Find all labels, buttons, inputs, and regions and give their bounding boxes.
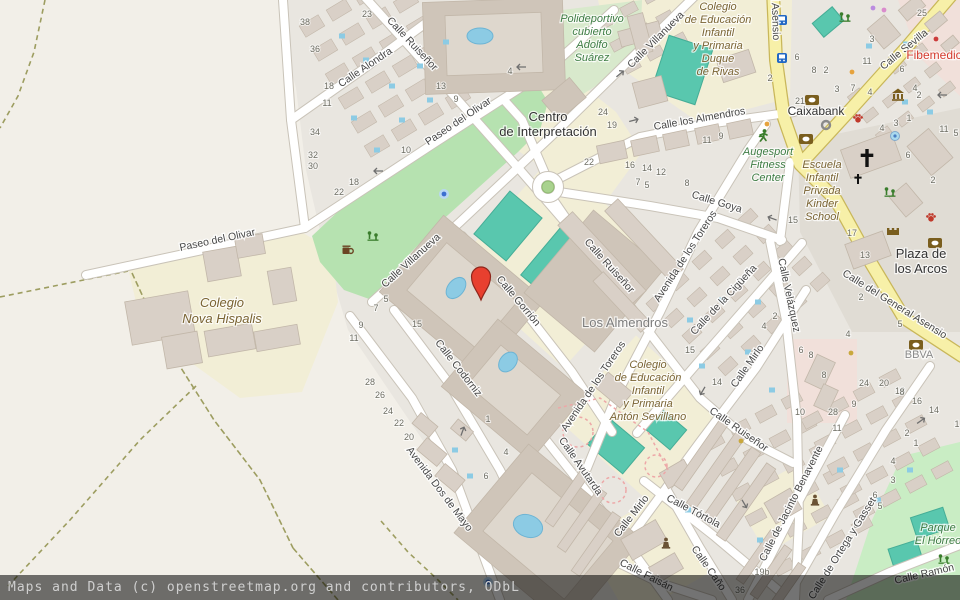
bus-stop-icon — [777, 53, 787, 63]
colegio-anton-sevillano-label: Antón Sevillano — [609, 411, 686, 423]
housenumber: 32 — [308, 150, 318, 160]
housenumber: 13 — [860, 250, 870, 260]
housenumber: 7 — [635, 177, 640, 187]
housenumber: 22 — [334, 187, 344, 197]
colegio-duque-de-rivas-label: de Educación — [685, 14, 752, 26]
plaza-los-arcos-label: Plaza de — [896, 246, 947, 261]
housenumber: 15 — [412, 319, 422, 329]
housenumber: 4 — [845, 329, 850, 339]
housenumber: 6 — [798, 345, 803, 355]
colegio-duque-de-rivas-label: de Rivas — [697, 66, 740, 78]
polideportivo-label: Suárez — [575, 52, 610, 64]
housenumber: 17 — [847, 228, 857, 238]
colegio-anton-sevillano-label: Infantil — [632, 385, 665, 397]
housenumber: 8 — [899, 387, 904, 397]
small-pool — [755, 300, 761, 305]
small-pool — [452, 448, 458, 453]
housenumber: 38 — [300, 17, 310, 27]
housenumber: 11 — [862, 56, 871, 66]
housenumber: 13 — [436, 81, 446, 91]
housenumber: 11 — [832, 423, 841, 433]
centro-interpretacion-label: Centro — [528, 109, 567, 124]
housenumber: 5 — [644, 180, 649, 190]
housenumber: 5 — [897, 319, 902, 329]
housenumber: 3 — [890, 475, 895, 485]
housenumber: 5 — [877, 501, 882, 511]
polideportivo-label: Polideportivo — [560, 13, 624, 25]
housenumber: 4 — [761, 321, 766, 331]
building — [203, 246, 242, 281]
map-viewport[interactable]: 3836181134323018222313910422192416141275… — [0, 0, 960, 600]
small-pool — [389, 84, 395, 89]
housenumber: 9 — [718, 131, 723, 141]
housenumber: 11 — [322, 98, 331, 108]
housenumber: 10 — [795, 407, 805, 417]
housenumber: 1 — [906, 113, 911, 123]
housenumber: 26 — [375, 390, 385, 400]
housenumber: 2 — [930, 175, 935, 185]
housenumber: 12 — [656, 167, 666, 177]
housenumber: 22 — [394, 418, 404, 428]
housenumber: 7 — [850, 83, 855, 93]
housenumber: 1 — [954, 419, 959, 429]
housenumber: 24 — [598, 107, 608, 117]
housenumber: 23 — [362, 9, 372, 19]
housenumber: 14 — [642, 163, 652, 173]
housenumber: 25 — [917, 8, 927, 18]
poi-dot — [849, 351, 854, 356]
housenumber: 1 — [485, 414, 490, 424]
small-pool — [699, 364, 705, 369]
housenumber: 15 — [685, 345, 695, 355]
building — [161, 331, 202, 369]
poi-dot — [765, 122, 770, 127]
housenumber: 18 — [349, 177, 359, 187]
housenumber: 3 — [834, 84, 839, 94]
housenumber: 11 — [702, 135, 711, 145]
housenumber: 36 — [310, 44, 320, 54]
parque-el-horreo-label: Parque — [920, 522, 955, 534]
escuela-kinder-label: Escuela — [802, 159, 841, 171]
housenumber: 6 — [905, 150, 910, 160]
housenumber: 11 — [349, 333, 358, 343]
colegio-duque-de-rivas-label: Infantil — [702, 27, 735, 39]
housenumber: 8 — [811, 65, 816, 75]
drinking-water-icon — [439, 189, 449, 199]
poi-dot — [934, 37, 939, 42]
escuela-kinder-label: Infantil — [806, 172, 839, 184]
housenumber: 34 — [310, 127, 320, 137]
housenumber: 30 — [308, 161, 318, 171]
attribution-text: Maps and Data (c) openstreetmap.org and … — [8, 580, 520, 595]
housenumber: 7 — [373, 303, 378, 313]
small-pool — [427, 98, 433, 103]
roundabout-island — [542, 181, 554, 193]
housenumber: 9 — [358, 320, 363, 330]
colegio-duque-de-rivas-label: Colegio — [699, 1, 736, 13]
small-pool — [769, 388, 775, 393]
housenumber: 9 — [851, 399, 856, 409]
polideportivo-label: Adolfo — [575, 39, 607, 51]
plaza-los-arcos-label: los Arcos — [895, 261, 948, 276]
small-pool — [339, 34, 345, 39]
housenumber: 3 — [893, 118, 898, 128]
poi-dot — [882, 8, 887, 13]
augesport-label: Augesport — [742, 146, 794, 158]
housenumber: 1 — [913, 438, 918, 448]
housenumber: 5 — [383, 294, 388, 304]
housenumber: 28 — [365, 377, 375, 387]
colegio-nova-hispalis-label: Colegio — [200, 295, 244, 310]
housenumber: 8 — [808, 350, 813, 360]
housenumber: 6 — [794, 52, 799, 62]
attribution-bar: Maps and Data (c) openstreetmap.org and … — [0, 575, 960, 600]
colegio-anton-sevillano-label: y Primaria — [622, 398, 673, 410]
poi-dot — [871, 6, 876, 11]
building — [445, 12, 543, 75]
small-pool — [907, 468, 913, 473]
housenumber: 2 — [823, 65, 828, 75]
escuela-kinder-label: Privada — [803, 185, 840, 197]
atm-icon — [799, 134, 813, 144]
housenumber: 2 — [858, 292, 863, 302]
caixabank-label: Caixabank — [788, 104, 846, 118]
map-canvas[interactable]: 3836181134323018222313910422192416141275… — [0, 0, 960, 600]
housenumber: 9 — [453, 94, 458, 104]
housenumber: 2 — [904, 428, 909, 438]
housenumber: 4 — [503, 447, 508, 457]
housenumber: 2 — [916, 90, 921, 100]
housenumber: 20 — [879, 378, 889, 388]
small-pool — [927, 110, 933, 115]
augesport-label: Center — [751, 172, 785, 184]
small-pool — [351, 116, 357, 121]
housenumber: 10 — [401, 145, 411, 155]
housenumber: 6 — [899, 64, 904, 74]
small-pool — [837, 468, 843, 473]
colegio-duque-de-rivas-label: y Primaria — [692, 40, 743, 52]
swimming-pool — [467, 28, 493, 44]
housenumber: 2 — [767, 73, 772, 83]
small-pool — [443, 40, 449, 45]
small-pool — [687, 318, 693, 323]
housenumber: 4 — [507, 66, 512, 76]
housenumber: 14 — [929, 405, 939, 415]
colegio-anton-sevillano-label: de Educación — [615, 372, 682, 384]
housenumber: 28 — [828, 407, 838, 417]
housenumber: 8 — [684, 178, 689, 188]
escuela-kinder-label: School — [805, 211, 839, 223]
housenumber: 3 — [869, 34, 874, 44]
housenumber: 24 — [383, 406, 393, 416]
housenumber: 19 — [607, 120, 617, 130]
housenumber: 16 — [625, 160, 635, 170]
small-pool — [399, 118, 405, 123]
small-pool — [866, 44, 872, 49]
colegio-anton-sevillano-label: Colegio — [629, 359, 666, 371]
small-pool — [467, 474, 473, 479]
poi-dot — [850, 70, 855, 75]
housenumber: 18 — [324, 81, 334, 91]
housenumber: 5 — [953, 128, 958, 138]
housenumber: 8 — [821, 370, 826, 380]
small-pool — [757, 538, 763, 543]
small-pool — [417, 64, 423, 69]
centro-interpretacion-label: de Interpretación — [499, 124, 597, 139]
housenumber: 4 — [879, 123, 884, 133]
housenumber: 24 — [859, 378, 869, 388]
small-pool — [374, 148, 380, 153]
escuela-kinder-label: Kinder — [806, 198, 839, 210]
colegio-nova-hispalis-label: Nova Hispalis — [182, 311, 262, 326]
fibemedic-label: Fibemedic — [906, 48, 960, 62]
los-almendros-label: Los Almendros — [582, 315, 668, 330]
housenumber: 4 — [867, 87, 872, 97]
housenumber: 20 — [404, 432, 414, 442]
housenumber: 16 — [912, 396, 922, 406]
colegio-duque-de-rivas-label: Duque — [702, 53, 734, 65]
housenumber: 2 — [772, 311, 777, 321]
housenumber: 14 — [712, 377, 722, 387]
housenumber: 6 — [483, 471, 488, 481]
housenumber: 15 — [788, 215, 798, 225]
bbva-label: BBVA — [905, 349, 934, 361]
housenumber: 4 — [890, 456, 895, 466]
fountain-icon — [891, 132, 900, 141]
augesport-label: Fitness — [750, 159, 786, 171]
polideportivo-label: cubierto — [572, 26, 611, 38]
housenumber: 11 — [939, 124, 948, 134]
parque-el-horreo-label: El Hórreo — [915, 535, 960, 547]
fort-icon — [887, 228, 899, 235]
housenumber: 22 — [584, 157, 594, 167]
